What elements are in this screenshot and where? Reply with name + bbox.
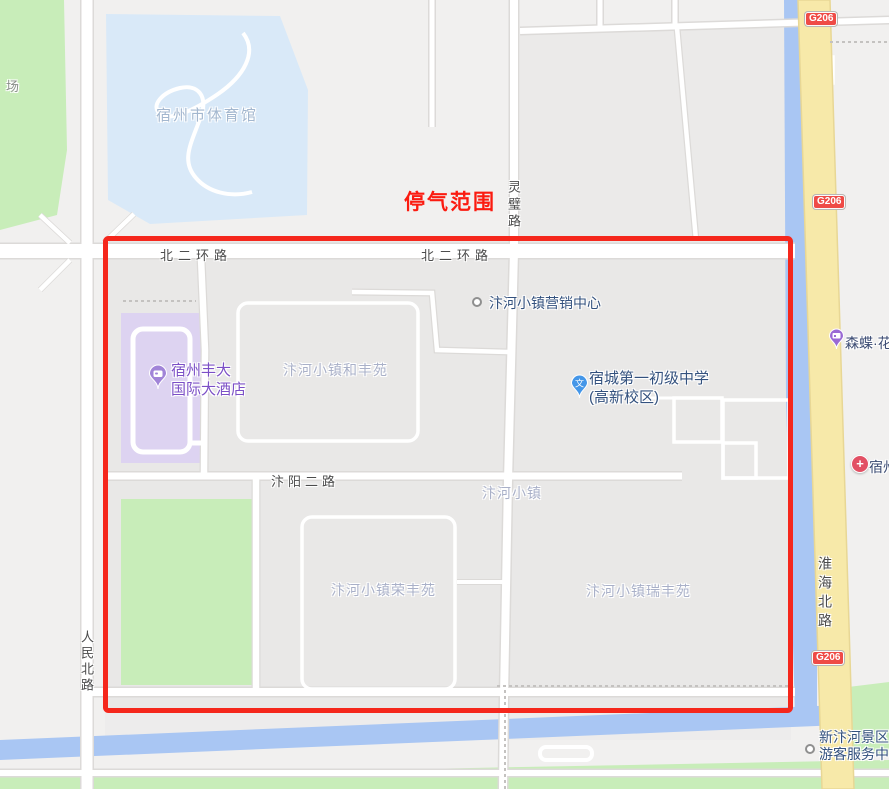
map-base-svg: [0, 0, 889, 789]
park-bottom-left: [121, 499, 254, 685]
highway-badge-g206-middle: G206: [813, 195, 845, 209]
gym-area: [106, 14, 308, 224]
flower-shop-pin-icon[interactable]: [828, 328, 845, 355]
scenic-center-marker[interactable]: [805, 744, 815, 754]
hospital-pin-icon[interactable]: +: [851, 455, 869, 473]
marketing-center-marker[interactable]: [472, 297, 482, 307]
map-canvas[interactable]: 停气范围 北二环路 北二环路 灵璧路 汴阳二路 人民北路 淮海北路 G206 G…: [0, 0, 889, 789]
hotel-pin-icon[interactable]: [148, 364, 168, 395]
park-top-left: [0, 0, 67, 230]
highway-badge-g206-bottom: G206: [812, 651, 844, 665]
svg-text:文: 文: [575, 378, 584, 389]
school-pin-icon[interactable]: 文: [570, 374, 589, 404]
highway-badge-g206-top: G206: [805, 12, 837, 26]
